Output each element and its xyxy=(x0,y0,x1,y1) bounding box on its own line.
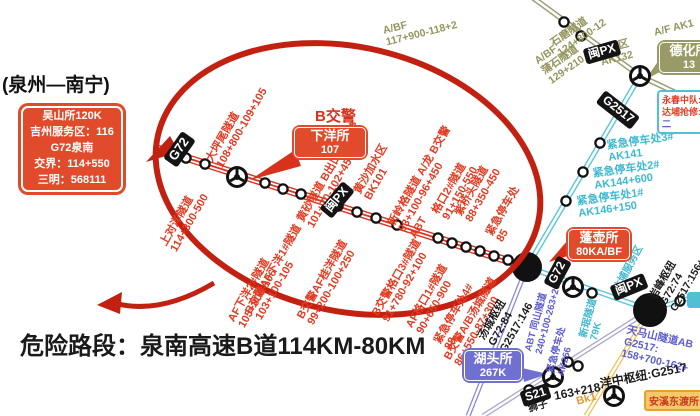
tunnel-portal-marker xyxy=(595,138,604,147)
danger-arrow xyxy=(97,283,214,314)
info-line: 三明：568111 xyxy=(20,173,124,189)
info-line: 吉州服务区：116 xyxy=(20,125,124,141)
rescue-line: 达埔抢修:1 xyxy=(662,106,700,118)
anxi-station-box: 安溪东渡所 xyxy=(644,390,700,411)
dehua-interchange-icon xyxy=(629,65,651,87)
info-line: 吴山所120K xyxy=(20,109,124,125)
station-name: 德化所 xyxy=(662,43,700,59)
hutou-station-box: 湖头所 267K xyxy=(462,348,524,383)
info-line: G72泉南 xyxy=(20,141,124,157)
route-title: (泉州—南宁) xyxy=(2,70,110,97)
police-label: B交警 xyxy=(315,105,356,126)
penghu-station-box: 蓬壶所 80KA/BF xyxy=(566,227,632,262)
tunnel-portal-marker xyxy=(587,288,596,297)
danger-text: 危险路段：泉南高速B道114KM-80KM xyxy=(20,326,425,361)
dehua-station-box: 德化所 13 xyxy=(657,40,700,75)
service-area-badge xyxy=(687,292,700,308)
tunnel-portal-marker xyxy=(573,361,582,370)
rescue-line: 永春中队:1 xyxy=(662,94,700,106)
station-name: 下洋所 xyxy=(297,128,363,144)
rescue-box: 永春中队:1 达埔抢修:1 二 xyxy=(657,90,700,134)
station-code: 13 xyxy=(662,59,700,72)
info-box: 吴山所120K 吉州服务区：116 G72泉南 交界：114+550 三明：56… xyxy=(18,103,126,195)
station-name: 安溪东渡所 xyxy=(649,397,699,408)
east-interchange-icon xyxy=(562,276,584,298)
station-name: 湖头所 xyxy=(467,351,519,367)
station-name: 蓬壶所 xyxy=(571,230,627,246)
tunnel-portal-marker xyxy=(561,196,570,205)
rescue-line: 二 xyxy=(662,118,700,130)
map-canvas: 上对洋隧道114+300-500大坪尾隧道108+800-109+105AF下洋… xyxy=(0,0,700,416)
info-line: 交界：114+550 xyxy=(20,157,124,173)
tunnel-portal-marker xyxy=(578,167,587,176)
station-code: 80KA/BF xyxy=(571,246,627,259)
station-code: 267K xyxy=(467,367,519,380)
xiayang-station-box: 下洋所 107 xyxy=(292,125,368,160)
station-code: 107 xyxy=(297,144,363,157)
